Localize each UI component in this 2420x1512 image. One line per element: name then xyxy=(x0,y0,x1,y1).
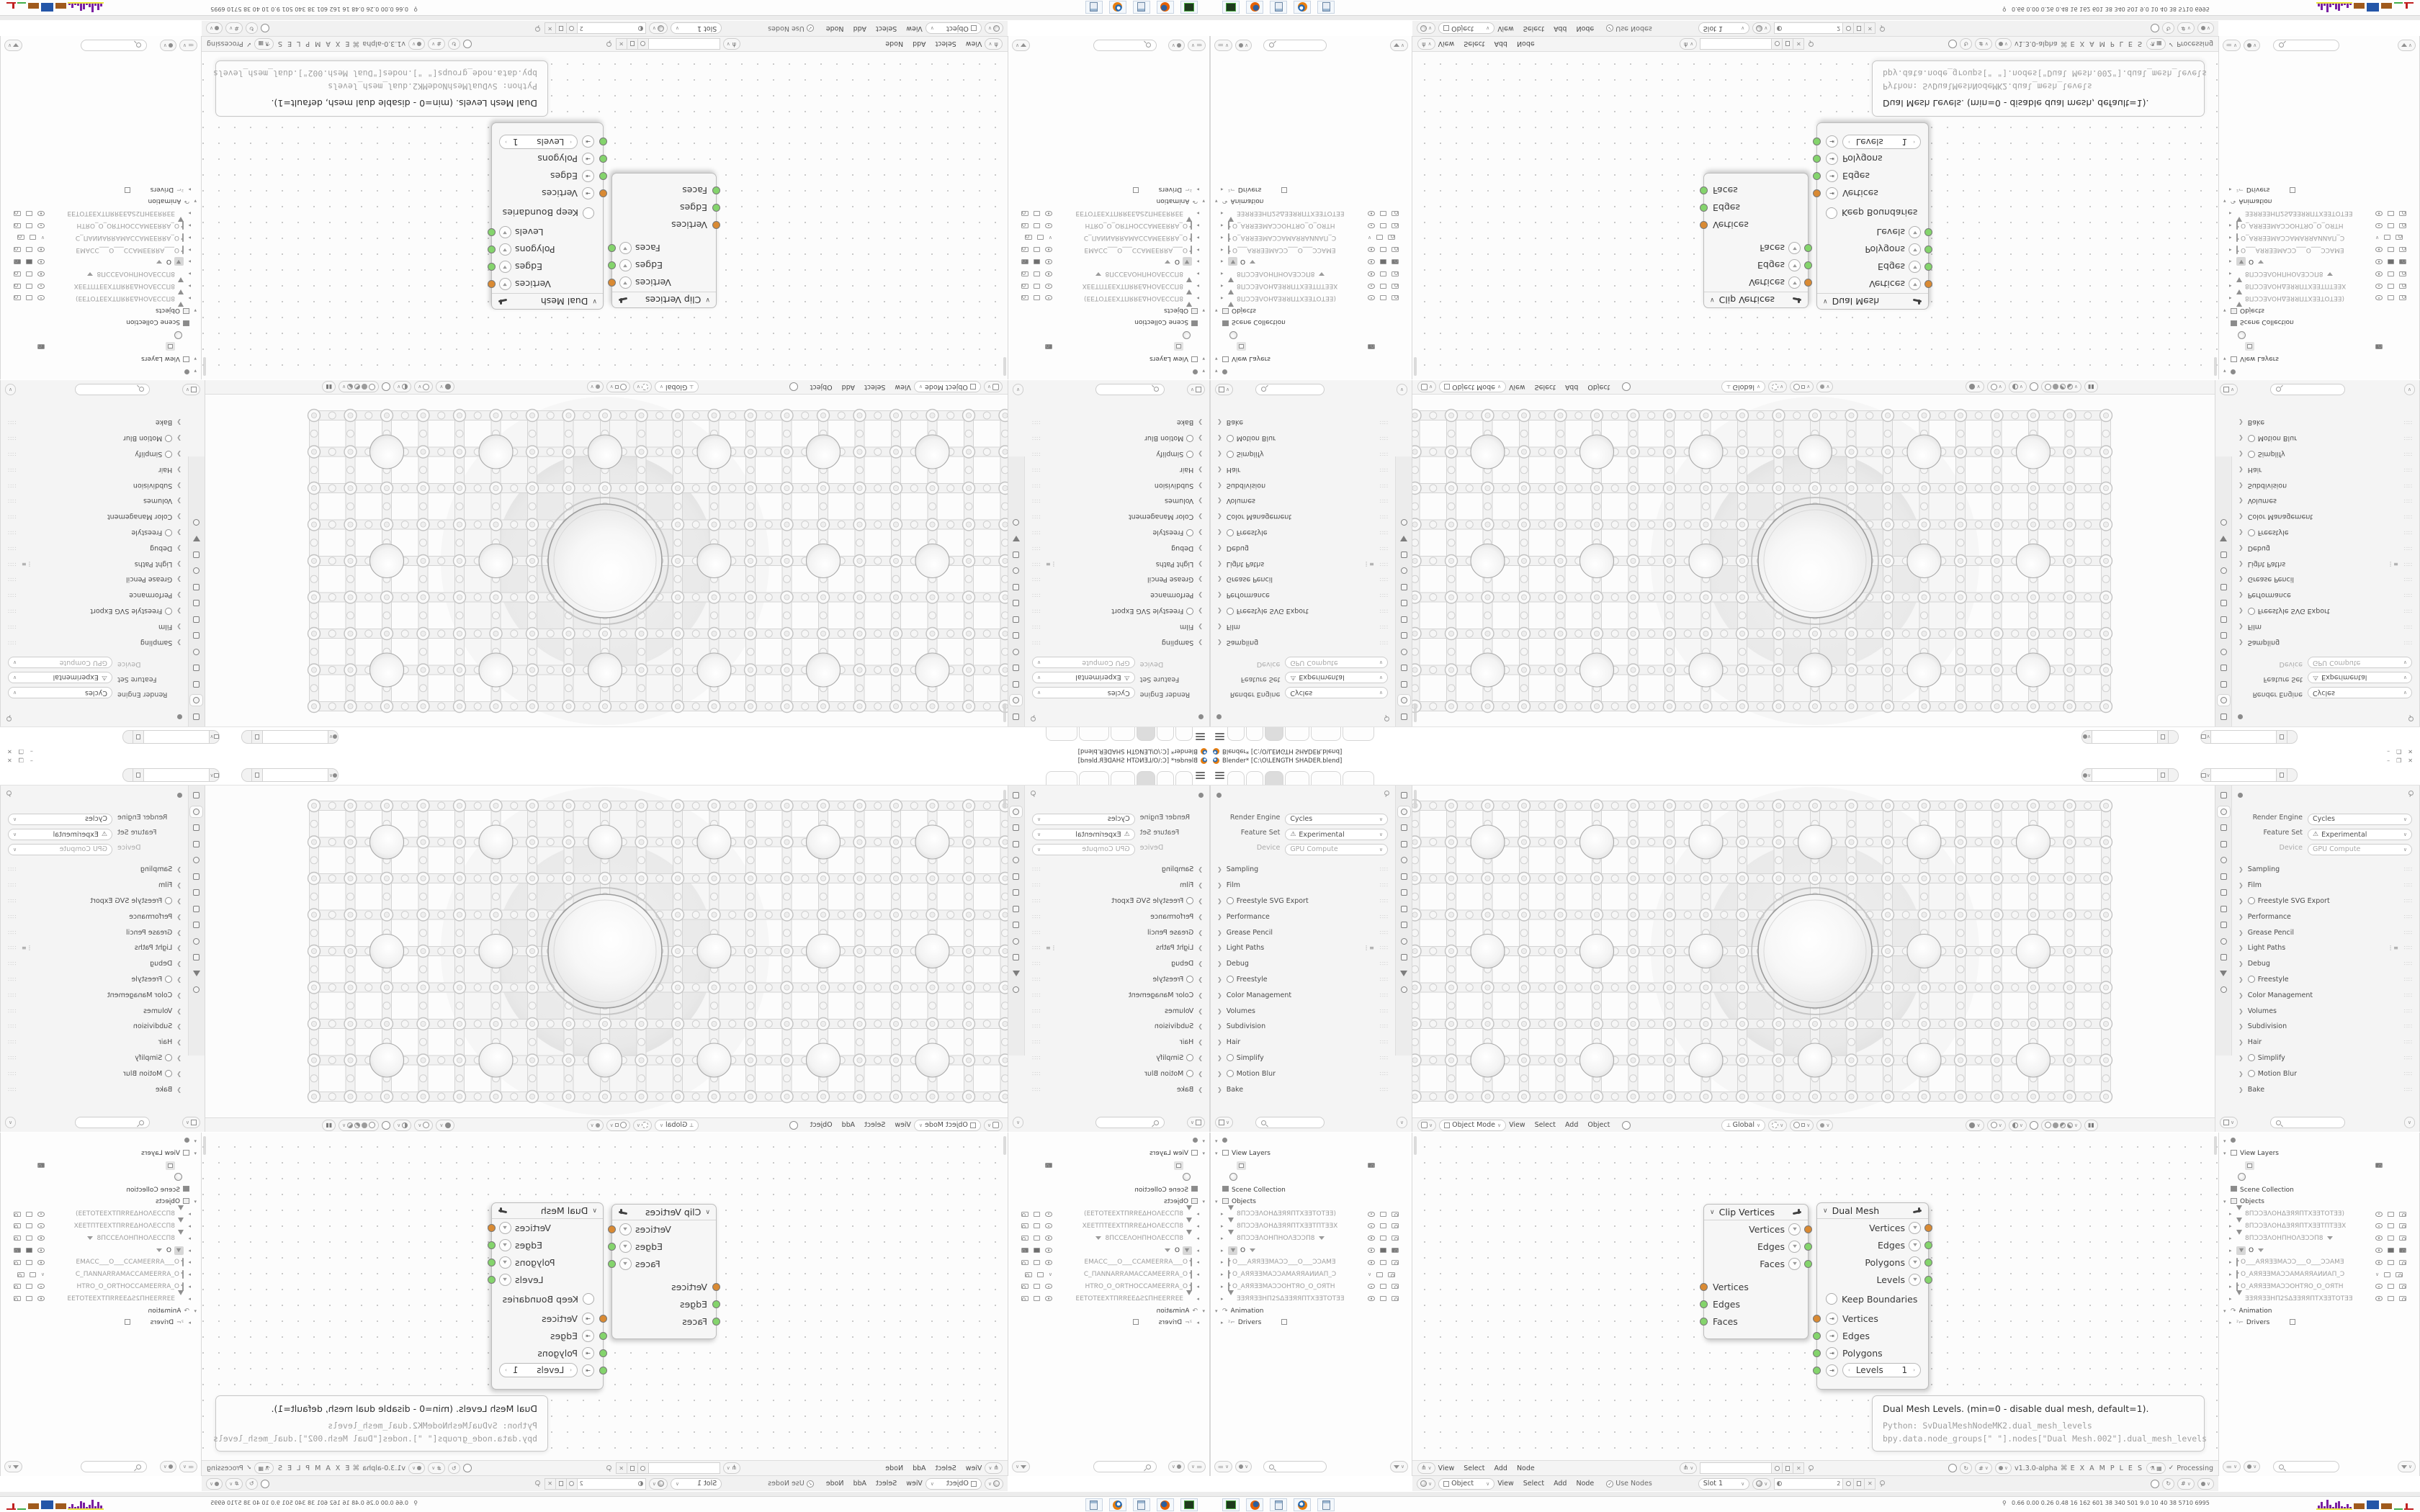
disable-viewport-icon[interactable] xyxy=(2388,1296,2394,1301)
tool-tab-icon[interactable] xyxy=(1010,790,1023,801)
editor-type-button[interactable]: ∨ xyxy=(2220,1117,2238,1128)
node-editor-menu-node[interactable]: Node xyxy=(885,1464,903,1472)
outliner-view-layers-row[interactable]: ▾View Layers xyxy=(2219,1148,2419,1160)
socket-dropdown[interactable] xyxy=(1909,1239,1921,1251)
socket-dropdown[interactable] xyxy=(1909,261,1921,274)
output-socket-edges[interactable] xyxy=(608,1243,616,1251)
physics-tab-icon[interactable] xyxy=(1398,566,1410,577)
property-dropdown-device[interactable]: GPU Compute∨ xyxy=(2308,657,2412,668)
property-dropdown-feature-set[interactable]: ⚠Experimental∨ xyxy=(1285,672,1388,683)
node-tree-name-field[interactable] xyxy=(1700,1462,1772,1474)
node-editor-menu-add[interactable]: Add xyxy=(913,40,926,48)
outliner-root-row[interactable]: ▾ xyxy=(1,364,201,377)
node-editor-menu-node[interactable]: Node xyxy=(1517,1464,1535,1472)
output-socket-edges[interactable] xyxy=(1804,1243,1812,1251)
properties-search-input[interactable] xyxy=(1095,1117,1165,1128)
pin-icon[interactable] xyxy=(606,1465,613,1472)
input-socket-edges[interactable] xyxy=(1813,1332,1821,1340)
node-input-vertices[interactable]: ⇥Vertices xyxy=(492,185,603,202)
property-dropdown-feature-set[interactable]: ⚠Experimental∨ xyxy=(2308,829,2412,840)
properties-section-freestyle-svg-export[interactable]: ❯Freestyle SVG Export∷∷ xyxy=(1,894,188,909)
world-tab-icon[interactable] xyxy=(2218,631,2230,642)
outliner-filter-button[interactable]: ∨ xyxy=(1012,1461,1030,1472)
constraints-tab-icon[interactable] xyxy=(191,549,203,560)
use-nodes-checkbox[interactable]: ✓ Use Nodes xyxy=(768,1480,814,1488)
node-input-polygons[interactable]: ⇥Polygons xyxy=(492,1344,603,1362)
node-input-edges[interactable]: ⇥Edges xyxy=(1817,168,1928,185)
properties-section-debug[interactable]: ❯Debug∷∷ xyxy=(1,956,188,972)
disable-render-icon[interactable] xyxy=(14,1236,21,1241)
snap-node-button[interactable]: ↻ xyxy=(1960,38,1972,50)
outliner-object-row-2[interactable]: ▸8ПƆƆƎΛOHΔƎЯЯПTXƎƎTПTƎƎX xyxy=(1211,1220,1412,1233)
disable-render-icon[interactable] xyxy=(14,247,21,252)
shader-menu-node[interactable]: Node xyxy=(1576,24,1594,32)
properties-section-volumes[interactable]: ❯Volumes∷∷ xyxy=(1211,1003,1395,1019)
eye-icon[interactable] xyxy=(2375,247,2383,252)
input-socket-edges[interactable] xyxy=(712,204,720,212)
shader-menu-add[interactable]: Add xyxy=(853,1480,866,1488)
constraints-tab-icon[interactable] xyxy=(1398,952,1410,963)
property-dropdown-render-engine[interactable]: Cycles∨ xyxy=(1285,687,1388,698)
properties-section-grease-pencil[interactable]: ❯Grease Pencil∷∷ xyxy=(1,572,188,588)
menu-hamburger-icon[interactable] xyxy=(1196,772,1205,779)
snap-grid-button[interactable]: #∨ xyxy=(428,38,445,50)
disable-viewport-icon[interactable] xyxy=(1376,1272,1383,1277)
eye-icon[interactable] xyxy=(2375,295,2383,300)
outliner-filter-type-button[interactable]: ∨ xyxy=(160,1461,176,1472)
modifiers-tab-icon[interactable] xyxy=(1398,904,1410,914)
outliner-world-item[interactable] xyxy=(1211,328,1412,341)
scene-name-field[interactable] xyxy=(2092,768,2158,782)
object-tab-icon[interactable] xyxy=(2218,614,2230,625)
input-socket-vertices[interactable] xyxy=(712,222,720,230)
disable-render-icon[interactable] xyxy=(14,259,21,264)
outliner-root-row[interactable]: ▾ xyxy=(1008,364,1209,377)
shader-menu-add[interactable]: Add xyxy=(853,24,866,32)
viewport-3d[interactable]: ∨ Object Mode∨ ViewSelectAddObject ⟂Glob… xyxy=(1412,786,2215,1132)
snap-toggle-button[interactable]: ∨ xyxy=(1768,382,1787,393)
disable-viewport-icon[interactable] xyxy=(1034,1284,1040,1289)
outliner-scene-collection-row[interactable]: Scene Collection xyxy=(1,316,201,328)
properties-section-color-management[interactable]: ❯Color Management∷∷ xyxy=(2232,987,2419,1003)
eye-icon[interactable] xyxy=(37,284,45,289)
disable-viewport-icon[interactable] xyxy=(1380,223,1386,228)
mode-dropdown[interactable]: Object Mode∨ xyxy=(914,382,981,393)
node-input-faces[interactable]: Faces xyxy=(612,1313,716,1330)
viewport-editor-type-button[interactable]: ∨ xyxy=(1417,1120,1436,1131)
disable-render-icon[interactable] xyxy=(2399,1284,2406,1289)
outliner-object-row-2[interactable]: ▸8ПƆƆƎΛOHΔƎЯЯПTXƎƎTПTƎƎX xyxy=(2219,280,2419,292)
eye-icon[interactable] xyxy=(1368,284,1375,289)
eye-closed-icon[interactable]: ∨ xyxy=(1049,1272,1052,1277)
eye-icon[interactable] xyxy=(1045,223,1052,228)
viewport-menu-object[interactable]: Object xyxy=(810,383,833,391)
outliner-object-row-3[interactable]: ▸8ПƆƆƎΛOHПHOΛƎƆƆП8 xyxy=(1,268,201,280)
object-tab-icon[interactable] xyxy=(191,614,203,625)
input-socket-polygons[interactable] xyxy=(599,1349,607,1357)
workspace-tab-2[interactable] xyxy=(1157,727,1174,741)
material-copy-button[interactable] xyxy=(555,1478,566,1490)
outliner-objects-collection-row[interactable]: ▾Objects xyxy=(2219,1196,2419,1208)
node-editor-canvas[interactable]: ∨Clip Vertices VerticesEdgesFaces Vertic… xyxy=(202,52,1008,379)
node-output-edges[interactable]: Edges xyxy=(1817,258,1928,276)
node-output-edges[interactable]: Edges xyxy=(612,1238,716,1255)
outliner-object-row-2[interactable]: ▸8ПƆƆƎΛOHΔƎЯЯПTXƎƎTПTƎƎX xyxy=(1008,280,1209,292)
disable-viewport-icon[interactable] xyxy=(2384,1272,2390,1277)
properties-section-bake[interactable]: ❯Bake∷∷ xyxy=(1,1081,188,1097)
output-socket-edges[interactable] xyxy=(608,262,616,270)
outliner-filter-type-button[interactable]: ∨ xyxy=(1235,1461,1252,1472)
workspace-tab-2[interactable] xyxy=(1246,727,1263,741)
properties-section-volumes[interactable]: ❯Volumes∷∷ xyxy=(2232,1003,2419,1019)
properties-section-simplify[interactable]: ❯Simplify∷∷ xyxy=(1025,446,1209,462)
output-socket-faces[interactable] xyxy=(608,1260,616,1268)
input-toggle[interactable]: ⇥ xyxy=(1826,171,1838,183)
eye-closed-icon[interactable]: ∨ xyxy=(2375,235,2379,240)
input-socket-polygons[interactable] xyxy=(599,156,607,163)
shader-menu-view[interactable]: View xyxy=(1497,24,1514,32)
node-input-edges[interactable]: Edges xyxy=(612,199,716,217)
physics-tab-icon[interactable] xyxy=(2218,936,2230,947)
disable-viewport-icon[interactable] xyxy=(1380,1236,1386,1241)
outliner-object-row-8[interactable]: ▸ƎƎЯЯƎƎHП2SΔƎƎЯЯПTXƎƎTOTƎƎ xyxy=(1008,1292,1209,1305)
outliner-object-row-7[interactable]: ▸O_AЯЯƎƎMAƆƆOHTЯO_O_OЯTH xyxy=(1008,1281,1209,1293)
snap-grid-button[interactable]: #∨ xyxy=(428,1462,445,1474)
shader-menu-select[interactable]: Select xyxy=(1523,24,1544,32)
node-output-vertices[interactable]: Vertices xyxy=(1704,274,1808,292)
update-buttons-group[interactable]: ⚗▦ xyxy=(2146,38,2166,50)
region-scrollbar[interactable] xyxy=(1414,703,1417,722)
material-name-group[interactable]: 2 ✕ xyxy=(1774,1478,1875,1490)
properties-section-motion-blur[interactable]: ❯Motion Blur∷∷ xyxy=(2232,431,2419,446)
properties-section-color-management[interactable]: ❯Color Management∷∷ xyxy=(1,509,188,525)
wireframe-shading-icon[interactable] xyxy=(2045,1122,2051,1128)
material-fake-user-button[interactable] xyxy=(1843,1478,1854,1490)
disable-viewport-icon[interactable] xyxy=(1034,1212,1040,1217)
node-input-vertices[interactable]: ⇥Vertices xyxy=(492,1310,603,1327)
modifiers-tab-icon[interactable] xyxy=(1398,598,1410,609)
taskbar-recorder-icon[interactable] xyxy=(1222,1,1240,14)
node-editor-canvas[interactable]: ∨Clip Vertices VerticesEdgesFaces Vertic… xyxy=(202,1133,1008,1460)
particles-tab-icon[interactable] xyxy=(191,582,203,593)
disable-viewport-icon[interactable] xyxy=(26,295,32,300)
fake-user-button[interactable] xyxy=(1772,38,1783,50)
properties-search-input[interactable] xyxy=(75,1117,150,1128)
taskbar-firefox-icon[interactable] xyxy=(1157,1,1174,14)
section-toggle-checkbox[interactable] xyxy=(2248,435,2255,442)
outliner-object-row-2[interactable]: ▸8ПƆƆƎΛOHΔƎЯЯПTXƎƎTПTƎƎX xyxy=(1211,280,1412,292)
snap-node-button[interactable]: ↻ xyxy=(448,1462,460,1474)
levels-input-row[interactable]: ⇥ ‹ Levels 1 › xyxy=(492,1362,603,1379)
view-layer-tab-icon[interactable] xyxy=(2218,663,2230,674)
node-dual-mesh[interactable]: ∨Dual Mesh VerticesEdgesPolygonsLevels K… xyxy=(1816,1202,1929,1390)
section-toggle-checkbox[interactable] xyxy=(2248,1054,2255,1061)
outliner-filter-button[interactable]: ∨ xyxy=(1390,1461,1408,1472)
node-input-polygons[interactable]: ⇥Polygons xyxy=(492,150,603,168)
outliner-filter-button[interactable]: ∨ xyxy=(4,40,22,51)
outliner-view-layers-row[interactable]: ▾View Layers xyxy=(1008,1148,1209,1160)
outliner-object-row-7[interactable]: ▸O_AЯЯƎƎMAƆƆOHTЯO_O_OЯTH xyxy=(2219,220,2419,232)
section-toggle-checkbox[interactable] xyxy=(1227,451,1234,458)
outliner-display-mode-button[interactable]: ≔∨ xyxy=(2223,1461,2241,1472)
disable-viewport-icon[interactable] xyxy=(2388,211,2394,216)
disable-viewport-icon[interactable] xyxy=(2388,1284,2394,1289)
browse-material-button[interactable]: ∨ xyxy=(1752,1478,1771,1490)
node-output-faces[interactable]: Faces xyxy=(612,240,716,257)
properties-section-subdivision[interactable]: ❯Subdivision∷∷ xyxy=(1211,1019,1395,1035)
output-socket-polygons[interactable] xyxy=(1924,1259,1932,1266)
workspace-tab-4[interactable] xyxy=(1111,727,1135,741)
outliner-animation-row[interactable]: ▾↷Animation xyxy=(1211,1305,1412,1317)
node-dual-mesh[interactable]: ∨Dual Mesh VerticesEdgesPolygonsLevels K… xyxy=(491,1202,604,1390)
eye-icon[interactable] xyxy=(37,223,45,228)
node-header[interactable]: ∨Dual Mesh xyxy=(492,1203,603,1219)
material-fake-user-button[interactable] xyxy=(566,23,577,35)
keep-boundaries-checkbox[interactable]: Keep Boundaries xyxy=(492,1288,603,1310)
node-clip-vertices[interactable]: ∨Clip Vertices VerticesEdgesFaces Vertic… xyxy=(611,173,717,308)
eye-closed-icon[interactable]: ∨ xyxy=(1049,235,1052,240)
disable-viewport-icon[interactable] xyxy=(1380,1296,1386,1301)
pin-icon[interactable] xyxy=(1878,1480,1885,1487)
socket-dropdown[interactable] xyxy=(499,279,511,291)
input-socket-edges[interactable] xyxy=(1700,204,1708,212)
material-slot-dropdown[interactable]: Slot 1∨ xyxy=(671,23,722,35)
socket-dropdown[interactable] xyxy=(1909,1256,1921,1269)
keep-boundaries-checkbox[interactable]: Keep Boundaries xyxy=(1817,202,1928,224)
material-fake-user-button[interactable] xyxy=(566,1478,577,1490)
properties-section-bake[interactable]: ❯Bake∷∷ xyxy=(2232,415,2419,431)
properties-section-motion-blur[interactable]: ❯Motion Blur∷∷ xyxy=(1,431,188,446)
properties-section-hair[interactable]: ❯Hair∷∷ xyxy=(1211,462,1395,477)
region-scrollbar[interactable] xyxy=(1414,790,1417,809)
disable-viewport-icon[interactable] xyxy=(1034,1260,1040,1265)
section-toggle-checkbox[interactable] xyxy=(2248,976,2255,983)
annotate-circle-icon[interactable] xyxy=(789,1121,798,1130)
section-toggle-checkbox[interactable] xyxy=(2248,897,2255,904)
camera-icon[interactable] xyxy=(1368,344,1375,349)
disable-render-icon[interactable] xyxy=(2399,1212,2406,1217)
render-tab-icon[interactable] xyxy=(2218,696,2230,706)
constraints-tab-icon[interactable] xyxy=(1010,952,1023,963)
disable-viewport-icon[interactable] xyxy=(26,1296,32,1301)
properties-section-freestyle-svg-export[interactable]: ❯Freestyle SVG Export∷∷ xyxy=(1025,894,1209,909)
properties-section-light-paths[interactable]: ❯Light Paths⋮≡∷∷ xyxy=(1025,556,1209,572)
properties-search-input[interactable] xyxy=(2270,1117,2345,1128)
input-toggle[interactable]: ⇥ xyxy=(1826,153,1838,166)
snap-settings-button[interactable]: ∨ xyxy=(1790,1120,1814,1131)
object-tab-icon[interactable] xyxy=(191,887,203,898)
viewport-menu-select[interactable]: Select xyxy=(864,1121,885,1129)
node-editor-type-button[interactable]: ⋔∨ xyxy=(985,1462,1003,1474)
disable-viewport-icon[interactable] xyxy=(30,1272,36,1277)
section-toggle-checkbox[interactable] xyxy=(1227,1054,1234,1061)
outliner-object-row-2[interactable]: ▸8ПƆƆƎΛOHΔƎЯЯПTXƎƎTПTƎƎX xyxy=(1,280,201,292)
taskbar-recorder-icon[interactable] xyxy=(1222,1498,1240,1511)
shader-editor-type-button[interactable]: ∨ xyxy=(985,1478,1003,1490)
disable-render-icon[interactable] xyxy=(14,1248,21,1253)
outliner-object-row-6[interactable]: ▸O_AЯЯƎƎMAƆƆAMAЯЯAИИAП_Ɔ∨ xyxy=(1,231,201,243)
node-output-vertices[interactable]: Vertices xyxy=(1704,1220,1808,1238)
disable-viewport-icon[interactable] xyxy=(26,1212,32,1217)
fake-user-button[interactable] xyxy=(637,1462,648,1474)
properties-section-sampling[interactable]: ❯Sampling∷∷ xyxy=(2232,634,2419,650)
property-dropdown-render-engine[interactable]: Cycles∨ xyxy=(8,814,112,825)
disable-viewport-icon[interactable] xyxy=(1034,271,1040,276)
property-dropdown-device[interactable]: GPU Compute∨ xyxy=(2308,844,2412,855)
disable-render-icon[interactable] xyxy=(2396,1272,2403,1277)
workspace-tab-5[interactable] xyxy=(1079,727,1109,741)
particles-tab-icon[interactable] xyxy=(2218,582,2230,593)
use-nodes-checkbox[interactable]: ✓ Use Nodes xyxy=(1606,24,1652,32)
mode-dropdown[interactable]: Object Mode∨ xyxy=(1439,382,1506,393)
material-name-group[interactable]: 2 ✕ xyxy=(1774,23,1875,35)
outliner-object-row-1[interactable]: ▸8ПƆƆƎΛOHΔƎЯЯПTXƎƎTOTƎƎ) xyxy=(2219,292,2419,304)
properties-options-button[interactable]: ∨ xyxy=(1013,1117,1023,1128)
workspace-tab-6[interactable] xyxy=(1343,771,1374,785)
input-toggle[interactable]: ⇥ xyxy=(1826,1313,1838,1325)
taskbar-blender-icon[interactable] xyxy=(1109,1498,1126,1511)
outliner-object-row-5[interactable]: ▸O___AЯЯƎƎMAƆƆ___O___ƆƆAMƎ xyxy=(1,1256,201,1269)
gizmos-button[interactable]: ∨ xyxy=(1987,382,2006,393)
properties-section-bake[interactable]: ❯Bake∷∷ xyxy=(1211,415,1395,431)
view-layer-tab-icon[interactable] xyxy=(1010,663,1023,674)
output-socket-vertices[interactable] xyxy=(608,279,616,287)
taskbar-firefox-icon[interactable] xyxy=(1157,1498,1174,1511)
outliner-animation-row[interactable]: ▾↷Animation xyxy=(2219,195,2419,207)
outliner-objects-collection-row[interactable]: ▾Objects xyxy=(1008,1196,1209,1208)
editor-type-button[interactable]: ∨ xyxy=(1187,1117,1205,1128)
workspace-tab-6[interactable] xyxy=(1046,727,1077,741)
maximize-button[interactable]: ❐ xyxy=(19,756,24,765)
outliner-display-mode-button[interactable]: ≔∨ xyxy=(179,1461,197,1472)
disable-viewport-icon[interactable] xyxy=(1380,284,1386,289)
outliner-objects-collection-row[interactable]: ▾Objects xyxy=(1211,304,1412,316)
tray-block-3[interactable] xyxy=(28,1503,39,1509)
node-output-vertices[interactable]: Vertices xyxy=(492,276,603,293)
node-output-edges[interactable]: Edges xyxy=(492,1236,603,1254)
eye-icon[interactable] xyxy=(2375,1223,2383,1228)
section-toggle-checkbox[interactable] xyxy=(1186,976,1193,983)
properties-section-hair[interactable]: ❯Hair∷∷ xyxy=(2232,462,2419,477)
disable-render-icon[interactable] xyxy=(1021,295,1028,300)
node-tree-selector[interactable]: ✕ xyxy=(1700,1462,1804,1474)
node-output-polygons[interactable]: Polygons xyxy=(492,241,603,258)
examples-menu[interactable]: E X A M P L E S xyxy=(2071,40,2143,48)
shader-editor-type-button[interactable]: ∨ xyxy=(985,23,1003,35)
disable-render-icon[interactable] xyxy=(2399,211,2406,216)
node-output-edges[interactable]: Edges xyxy=(612,257,716,274)
outliner-search-input[interactable] xyxy=(1263,1461,1327,1472)
view-layer-tab-icon[interactable] xyxy=(2218,839,2230,850)
constraints-tab-icon[interactable] xyxy=(1010,549,1023,560)
object-data-tab-icon[interactable] xyxy=(1010,534,1023,544)
solid-shading-icon[interactable] xyxy=(2053,1122,2058,1128)
menu-hamburger-icon[interactable] xyxy=(1215,772,1224,779)
disable-render-icon[interactable] xyxy=(1025,1272,1032,1277)
socket-dropdown[interactable] xyxy=(1909,1274,1921,1286)
properties-section-motion-blur[interactable]: ❯Motion Blur∷∷ xyxy=(1025,1066,1209,1081)
shading-mode-group[interactable]: ∨ xyxy=(339,1120,379,1131)
shader-menu-select[interactable]: Select xyxy=(876,1480,897,1488)
minimize-button[interactable]: – xyxy=(2387,747,2390,756)
eye-icon[interactable] xyxy=(1045,284,1052,289)
pivot-point-button[interactable]: ∨ xyxy=(436,382,454,393)
shader-menu-select[interactable]: Select xyxy=(1523,1480,1544,1488)
outliner-display-mode-button[interactable]: ≔∨ xyxy=(2223,40,2241,51)
outliner-filter-button[interactable]: ∨ xyxy=(4,1461,22,1472)
disable-render-icon[interactable] xyxy=(1021,1284,1028,1289)
properties-section-volumes[interactable]: ❯Volumes∷∷ xyxy=(1211,493,1395,509)
disable-viewport-icon[interactable] xyxy=(26,223,32,228)
wireframe-shading-icon[interactable] xyxy=(2045,384,2051,390)
outliner-object-row-6[interactable]: ▸O_AЯЯƎƎMAƆƆAMAЯЯAИИAП_Ɔ∨ xyxy=(1008,1269,1209,1281)
input-socket-vertices[interactable] xyxy=(1700,222,1708,230)
outliner-search-input[interactable] xyxy=(1093,40,1157,51)
section-toggle-checkbox[interactable] xyxy=(1186,529,1193,536)
shader-menu-view[interactable]: View xyxy=(1497,1480,1514,1488)
property-dropdown-feature-set[interactable]: ⚠Experimental∨ xyxy=(8,829,112,840)
disable-render-icon[interactable] xyxy=(1391,211,1399,216)
overlay-button[interactable]: ∨ xyxy=(206,23,223,35)
snap-node-button[interactable]: ↻ xyxy=(2162,1478,2174,1490)
node-input-vertices[interactable]: Vertices xyxy=(1704,1278,1808,1295)
properties-section-color-management[interactable]: ❯Color Management∷∷ xyxy=(1211,509,1395,525)
modifiers-tab-icon[interactable] xyxy=(191,904,203,914)
properties-section-volumes[interactable]: ❯Volumes∷∷ xyxy=(1,493,188,509)
material-tab-icon[interactable] xyxy=(2218,984,2230,995)
disable-viewport-icon[interactable] xyxy=(2388,271,2394,276)
material-users-count[interactable]: 2 xyxy=(1837,25,1840,32)
node-input-edges[interactable]: Edges xyxy=(1704,199,1808,217)
properties-section-film[interactable]: ❯Film∷∷ xyxy=(1025,878,1209,894)
node-output-edges[interactable]: Edges xyxy=(1817,1236,1928,1254)
minimize-button[interactable]: – xyxy=(2387,756,2390,765)
close-button[interactable]: ✕ xyxy=(2408,756,2413,765)
outliner-view-layers-row[interactable]: ▾View Layers xyxy=(1,352,201,364)
overlay-button[interactable]: ∨ xyxy=(408,38,425,50)
outliner-animation-row[interactable]: ▾↷Animation xyxy=(1,1305,201,1317)
properties-section-performance[interactable]: ❯Performance∷∷ xyxy=(1211,588,1395,603)
properties-section-performance[interactable]: ❯Performance∷∷ xyxy=(1,588,188,603)
eye-icon[interactable] xyxy=(37,271,45,276)
property-dropdown-render-engine[interactable]: Cycles∨ xyxy=(1032,687,1135,698)
outliner-object-row-7[interactable]: ▸O_AЯЯƎƎMAƆƆOHTЯO_O_OЯTH xyxy=(1211,1281,1412,1293)
node-tree-icon-button[interactable]: ⋔∨ xyxy=(723,38,741,50)
pin-icon[interactable] xyxy=(1807,1465,1814,1472)
levels-value-stepper[interactable]: ‹ Levels 1 › xyxy=(1842,1363,1921,1377)
pin-icon[interactable] xyxy=(1383,716,1389,722)
output-socket-levels[interactable] xyxy=(488,1276,496,1284)
properties-section-debug[interactable]: ❯Debug∷∷ xyxy=(2232,540,2419,556)
outliner-object-row-4[interactable]: ▸O xyxy=(2219,1244,2419,1256)
region-scrollbar[interactable] xyxy=(1414,357,1417,376)
pin-icon[interactable] xyxy=(1807,41,1814,48)
disable-render-icon[interactable] xyxy=(14,271,21,276)
socket-dropdown[interactable] xyxy=(619,260,632,272)
outliner-filter-button[interactable]: ∨ xyxy=(1012,40,1030,51)
disable-viewport-icon[interactable] xyxy=(26,259,32,264)
copy-node-tree-button[interactable] xyxy=(1783,38,1793,50)
outliner-view-layer-item[interactable] xyxy=(2219,341,2419,353)
shading-mode-group[interactable]: ∨ xyxy=(2041,382,2081,393)
region-scrollbar[interactable] xyxy=(1414,1136,1417,1155)
outliner-object-row-6[interactable]: ▸O_AЯЯƎƎMAƆƆAMAЯЯAИИAП_Ɔ∨ xyxy=(2219,231,2419,243)
properties-section-grease-pencil[interactable]: ❯Grease Pencil∷∷ xyxy=(1211,924,1395,940)
workspace-tab-1[interactable] xyxy=(1175,771,1193,785)
tray-block-2[interactable] xyxy=(41,3,53,12)
disable-render-icon[interactable] xyxy=(1391,271,1399,276)
node-tree-icon-button[interactable]: ⋔∨ xyxy=(723,1462,741,1474)
